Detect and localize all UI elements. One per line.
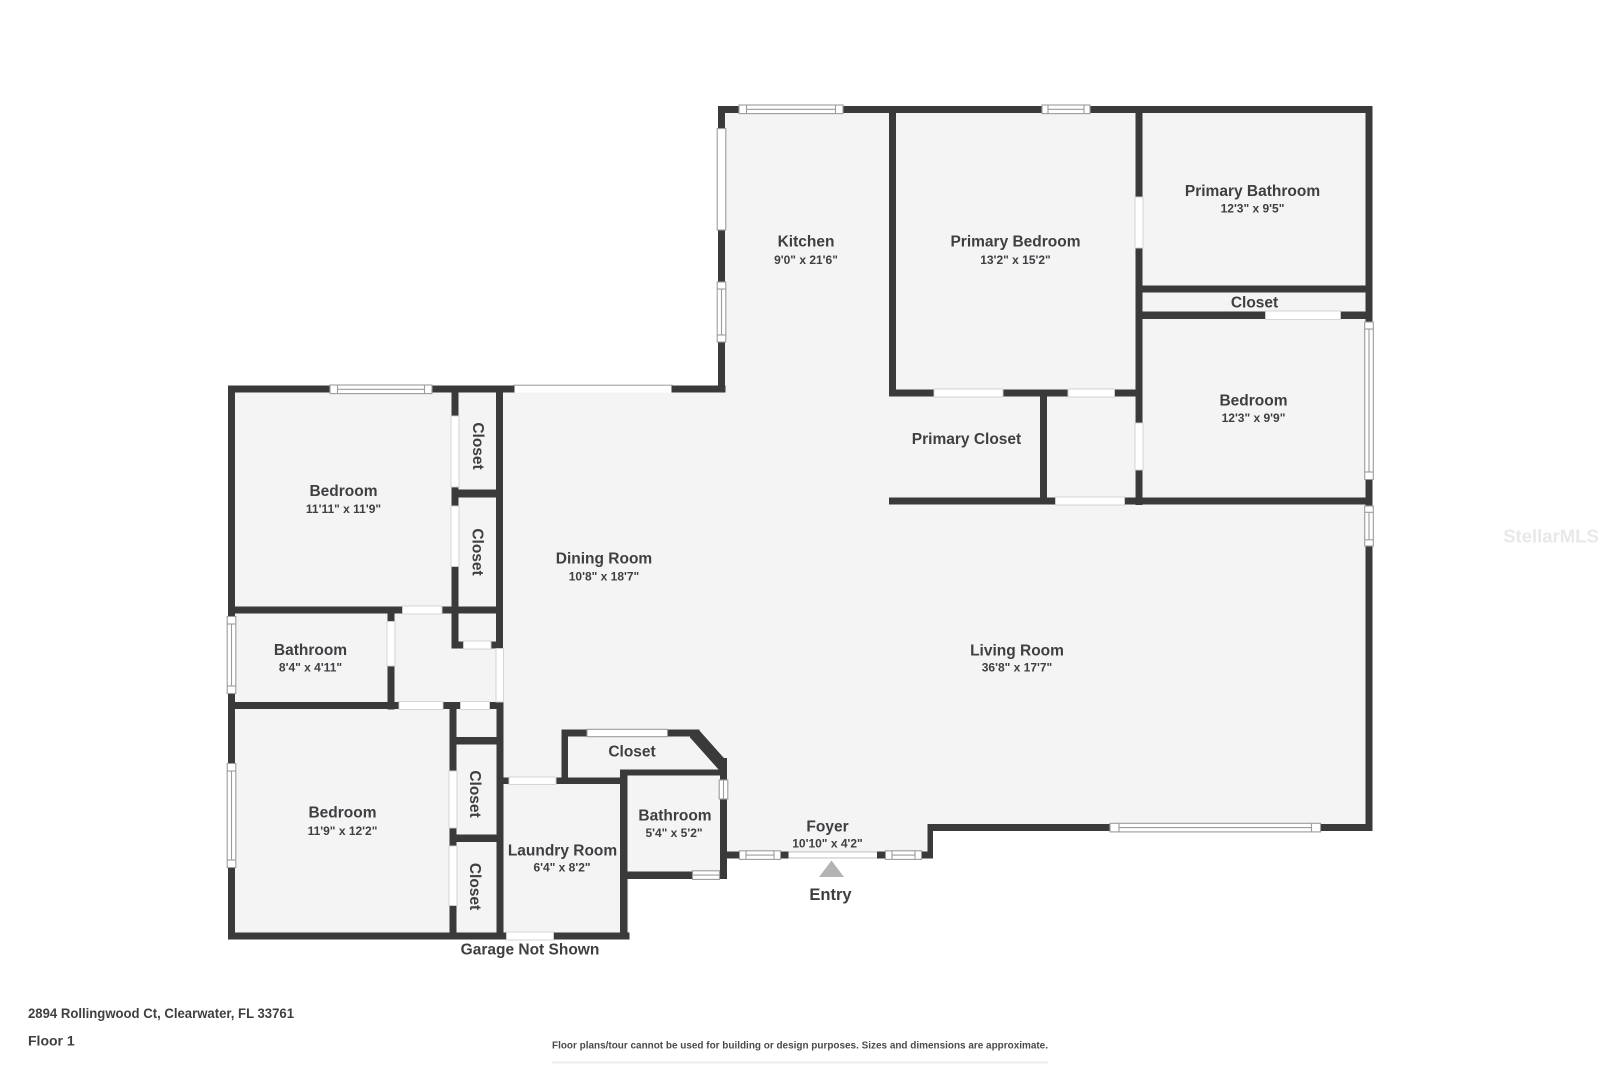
svg-text:Living Room: Living Room <box>970 643 1064 660</box>
svg-text:Closet: Closet <box>608 744 655 761</box>
svg-text:5'4" x 5'2": 5'4" x 5'2" <box>645 826 702 840</box>
svg-text:Kitchen: Kitchen <box>778 234 835 251</box>
svg-text:Closet: Closet <box>469 528 486 575</box>
svg-text:Closet: Closet <box>466 770 483 817</box>
svg-text:6'4" x 8'2": 6'4" x 8'2" <box>533 861 590 875</box>
svg-text:Floor 1: Floor 1 <box>28 1033 75 1049</box>
svg-text:10'8" x 18'7": 10'8" x 18'7" <box>569 570 639 584</box>
svg-text:Bedroom: Bedroom <box>308 805 376 822</box>
svg-text:Primary Bedroom: Primary Bedroom <box>950 234 1080 251</box>
svg-text:12'3" x 9'5": 12'3" x 9'5" <box>1221 202 1285 216</box>
svg-text:Bathroom: Bathroom <box>274 642 347 659</box>
svg-text:8'4" x 4'11": 8'4" x 4'11" <box>279 661 342 675</box>
svg-text:36'8" x 17'7": 36'8" x 17'7" <box>982 661 1052 675</box>
svg-text:11'11" x 11'9": 11'11" x 11'9" <box>306 502 381 516</box>
svg-text:Closet: Closet <box>469 422 486 469</box>
svg-text:Foyer: Foyer <box>806 819 848 836</box>
svg-text:Closet: Closet <box>466 863 483 910</box>
svg-text:Bathroom: Bathroom <box>638 808 711 825</box>
svg-text:Bedroom: Bedroom <box>309 483 377 500</box>
svg-text:Closet: Closet <box>1231 295 1278 312</box>
svg-text:Primary Closet: Primary Closet <box>912 431 1021 448</box>
svg-text:Floor plans/tour cannot be use: Floor plans/tour cannot be used for buil… <box>552 1040 1048 1052</box>
svg-text:Dining Room: Dining Room <box>556 551 652 568</box>
svg-text:2894 Rollingwood Ct, Clearwate: 2894 Rollingwood Ct, Clearwater, FL 3376… <box>28 1005 294 1021</box>
svg-text:Bedroom: Bedroom <box>1219 393 1287 410</box>
svg-text:10'10" x 4'2": 10'10" x 4'2" <box>792 837 862 851</box>
svg-text:StellarMLS: StellarMLS <box>1503 526 1599 547</box>
svg-text:Laundry Room: Laundry Room <box>508 843 617 860</box>
svg-text:12'3" x 9'9": 12'3" x 9'9" <box>1222 411 1286 425</box>
svg-text:Garage Not Shown: Garage Not Shown <box>461 942 600 959</box>
svg-text:13'2" x 15'2": 13'2" x 15'2" <box>980 253 1050 267</box>
svg-text:9'0" x 21'6": 9'0" x 21'6" <box>774 253 838 267</box>
svg-text:11'9" x 12'2": 11'9" x 12'2" <box>308 824 378 838</box>
svg-text:Primary Bathroom: Primary Bathroom <box>1185 183 1320 200</box>
svg-text:Entry: Entry <box>809 886 852 904</box>
